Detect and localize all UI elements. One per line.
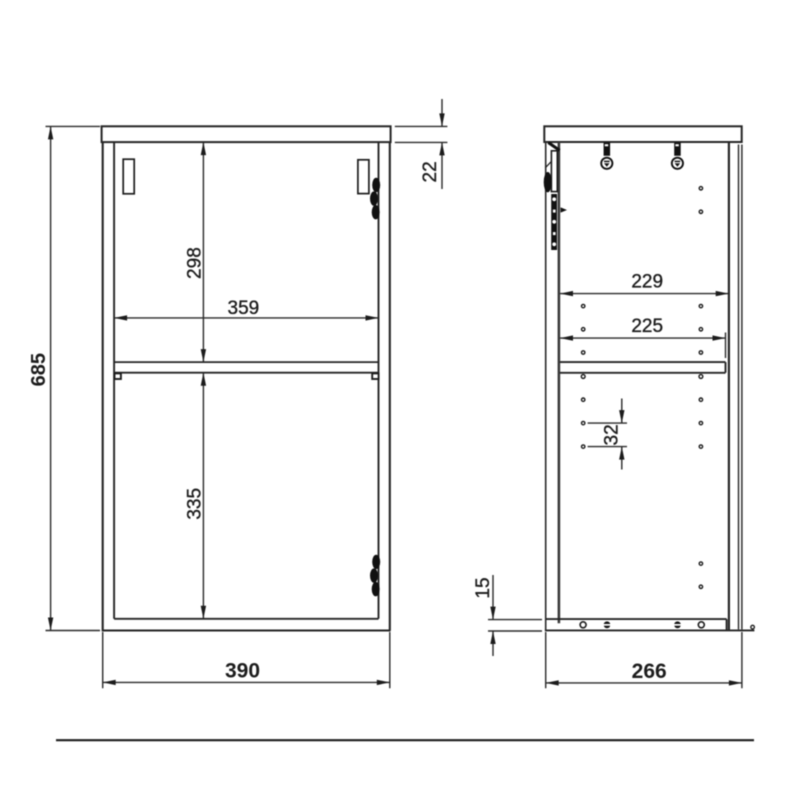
svg-text:390: 390	[225, 659, 260, 682]
svg-text:298: 298	[184, 247, 205, 279]
svg-text:266: 266	[632, 660, 667, 683]
svg-text:229: 229	[631, 272, 663, 293]
svg-text:32: 32	[601, 424, 622, 445]
svg-text:22: 22	[420, 161, 441, 182]
svg-text:225: 225	[631, 316, 663, 337]
svg-text:685: 685	[28, 353, 50, 386]
svg-text:359: 359	[228, 298, 260, 319]
svg-text:335: 335	[184, 488, 205, 520]
svg-text:15: 15	[473, 577, 494, 598]
